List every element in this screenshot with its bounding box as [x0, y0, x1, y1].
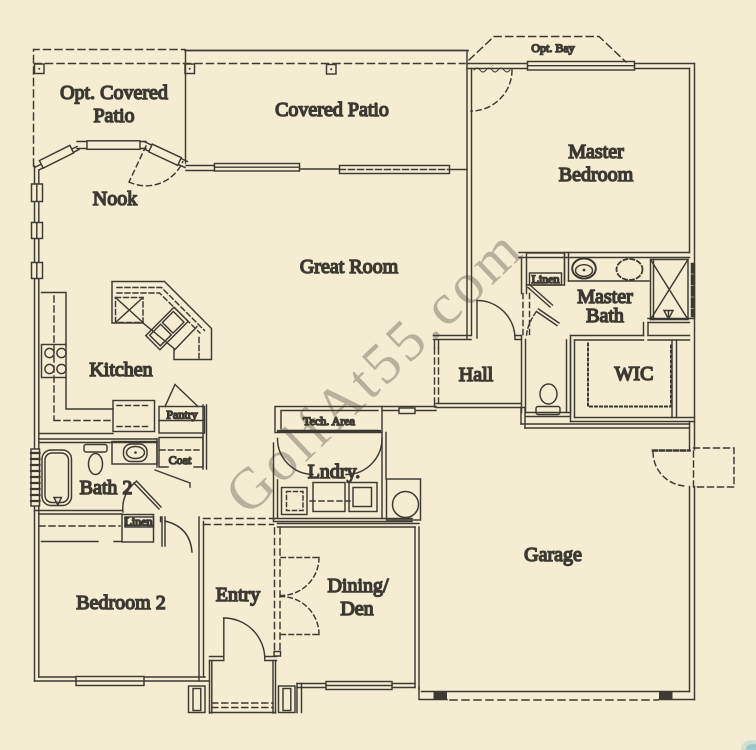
svg-text:Opt. Bay: Opt. Bay	[531, 41, 574, 55]
svg-text:Hall: Hall	[459, 364, 494, 386]
svg-text:Garage: Garage	[524, 544, 582, 566]
svg-text:Bedroom: Bedroom	[559, 164, 634, 186]
svg-text:Linen: Linen	[532, 272, 560, 286]
svg-text:Coat: Coat	[169, 453, 192, 467]
svg-text:Nook: Nook	[93, 188, 137, 210]
svg-text:Bath: Bath	[586, 305, 624, 327]
svg-text:WIC: WIC	[615, 363, 654, 385]
svg-text:Lndry.: Lndry.	[308, 461, 361, 483]
svg-text:Opt. Covered: Opt. Covered	[60, 82, 168, 104]
svg-text:Den: Den	[340, 598, 373, 620]
svg-text:Covered Patio: Covered Patio	[275, 99, 389, 121]
svg-text:Great Room: Great Room	[300, 256, 399, 278]
svg-text:Entry: Entry	[216, 584, 260, 606]
svg-text:Bedroom 2: Bedroom 2	[76, 592, 165, 614]
svg-text:Linen: Linen	[125, 515, 153, 529]
svg-text:Tech. Area: Tech. Area	[303, 414, 355, 428]
svg-text:Master: Master	[568, 141, 624, 163]
svg-text:Patio: Patio	[93, 105, 134, 127]
svg-text:Kitchen: Kitchen	[89, 359, 152, 381]
svg-text:Pantry: Pantry	[166, 408, 197, 422]
svg-text:Dining/: Dining/	[327, 575, 389, 597]
